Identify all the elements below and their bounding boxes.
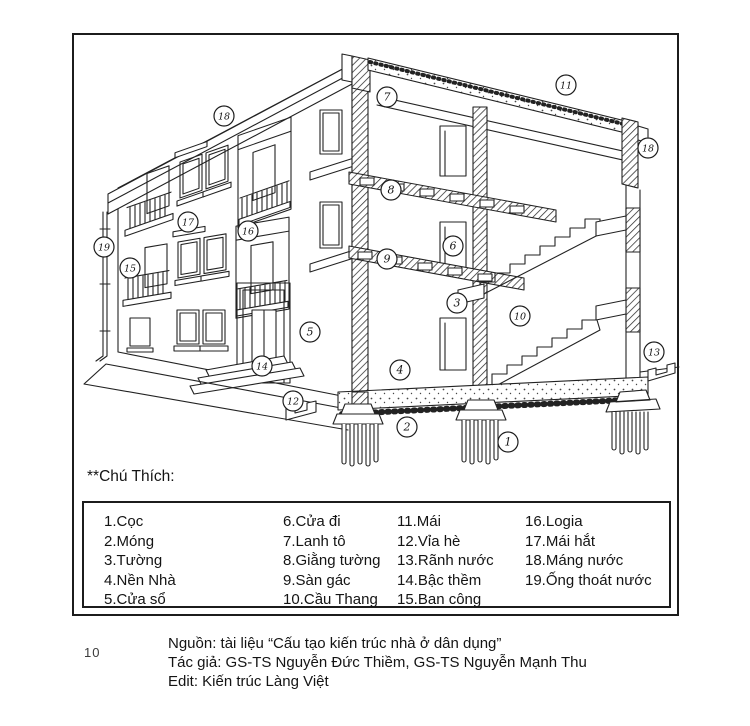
legend-item: 2. Móng <box>104 532 176 552</box>
legend-box: 1. Cọc2. Móng3. Tường4. Nền Nhà5. Cửa sổ… <box>82 501 671 608</box>
legend-item: 17. Mái hắt <box>525 532 652 552</box>
callout-number-15: 15 <box>124 264 136 275</box>
legend-item: 18. Máng nước <box>525 551 652 571</box>
page-number: 10 <box>84 645 100 660</box>
callout-number-6: 6 <box>450 240 457 253</box>
legend-item: 19. Ống thoát nước <box>525 571 652 591</box>
legend-item: 13. Rãnh nước <box>397 551 494 571</box>
roof <box>368 58 648 188</box>
callout-number-12: 12 <box>287 397 299 408</box>
legend-column-3: 11. Mái12. Vỉa hè13. Rãnh nước14. Bậc th… <box>397 512 494 610</box>
callout-number-3: 3 <box>454 297 461 310</box>
legend-item: 1. Cọc <box>104 512 176 532</box>
legend-title: **Chú Thích: <box>87 468 175 486</box>
scanned-document-page: { "figure": { "legend_title": "**Chú Thí… <box>0 0 750 726</box>
downspout-pipe <box>96 212 110 361</box>
floor-slab-upper <box>349 172 556 222</box>
right-wall <box>596 184 640 390</box>
callout-number-14: 14 <box>256 362 268 373</box>
legend-item: 16. Logia <box>525 512 652 532</box>
legend-item: 3. Tường <box>104 551 176 571</box>
legend-column-4: 16. Logia17. Mái hắt18. Máng nước19. Ống… <box>525 512 652 590</box>
callout-number-16: 16 <box>242 227 254 238</box>
attribution-line: Edit: Kiến trúc Làng Việt <box>168 672 587 691</box>
callout-number-9: 9 <box>384 253 391 266</box>
roof-gutter <box>622 118 638 188</box>
drain-channel <box>648 363 675 381</box>
callout-number-17: 17 <box>182 218 195 229</box>
legend-item: 14. Bậc thềm <box>397 571 494 591</box>
legend-item: 9. Sàn gác <box>283 571 380 591</box>
attribution-line: Tác giả: GS-TS Nguyễn Đức Thiềm, GS-TS N… <box>168 653 587 672</box>
callout-number-19: 19 <box>98 243 110 254</box>
callout-number-7: 7 <box>384 91 391 104</box>
floor-slab-lower <box>349 246 524 290</box>
callout-number-18: 18 <box>642 144 654 155</box>
legend-item: 8. Giằng tường <box>283 551 380 571</box>
callout-number-8: 8 <box>388 184 395 197</box>
legend-item: 7. Lanh tô <box>283 532 380 552</box>
legend-item: 11. Mái <box>397 512 494 532</box>
callout-number-4: 4 <box>396 364 404 377</box>
legend-column-1: 1. Cọc2. Móng3. Tường4. Nền Nhà5. Cửa sổ <box>104 512 176 610</box>
attribution-line: Nguồn: tài liệu “Cấu tạo kiến trúc nhà ở… <box>168 634 587 653</box>
callout-number-5: 5 <box>307 326 314 339</box>
legend-column-2: 6. Cửa đi7. Lanh tô8. Giằng tường9. Sàn … <box>283 512 380 610</box>
legend-item: 12. Vỉa hè <box>397 532 494 552</box>
callout-number-13: 13 <box>648 348 660 359</box>
legend-item: 6. Cửa đi <box>283 512 380 532</box>
callout-number-1: 1 <box>505 436 512 449</box>
legend-item: 5. Cửa sổ <box>104 590 176 610</box>
callout-number-10: 10 <box>514 312 526 323</box>
legend-item: 10. Cầu Thang <box>283 590 380 610</box>
callout-number-11: 11 <box>560 81 572 92</box>
attribution: Nguồn: tài liệu “Cấu tạo kiến trúc nhà ở… <box>168 634 587 691</box>
callout-number-2: 2 <box>403 421 411 434</box>
callout-number-18: 18 <box>218 112 230 123</box>
interior-wall <box>473 107 487 392</box>
legend-item: 4. Nền Nhà <box>104 571 176 591</box>
building-cross-section-diagram: 1234567891011121314151617181819 <box>0 0 750 726</box>
legend-item: 15. Ban công <box>397 590 494 610</box>
cut-wall <box>352 60 368 392</box>
